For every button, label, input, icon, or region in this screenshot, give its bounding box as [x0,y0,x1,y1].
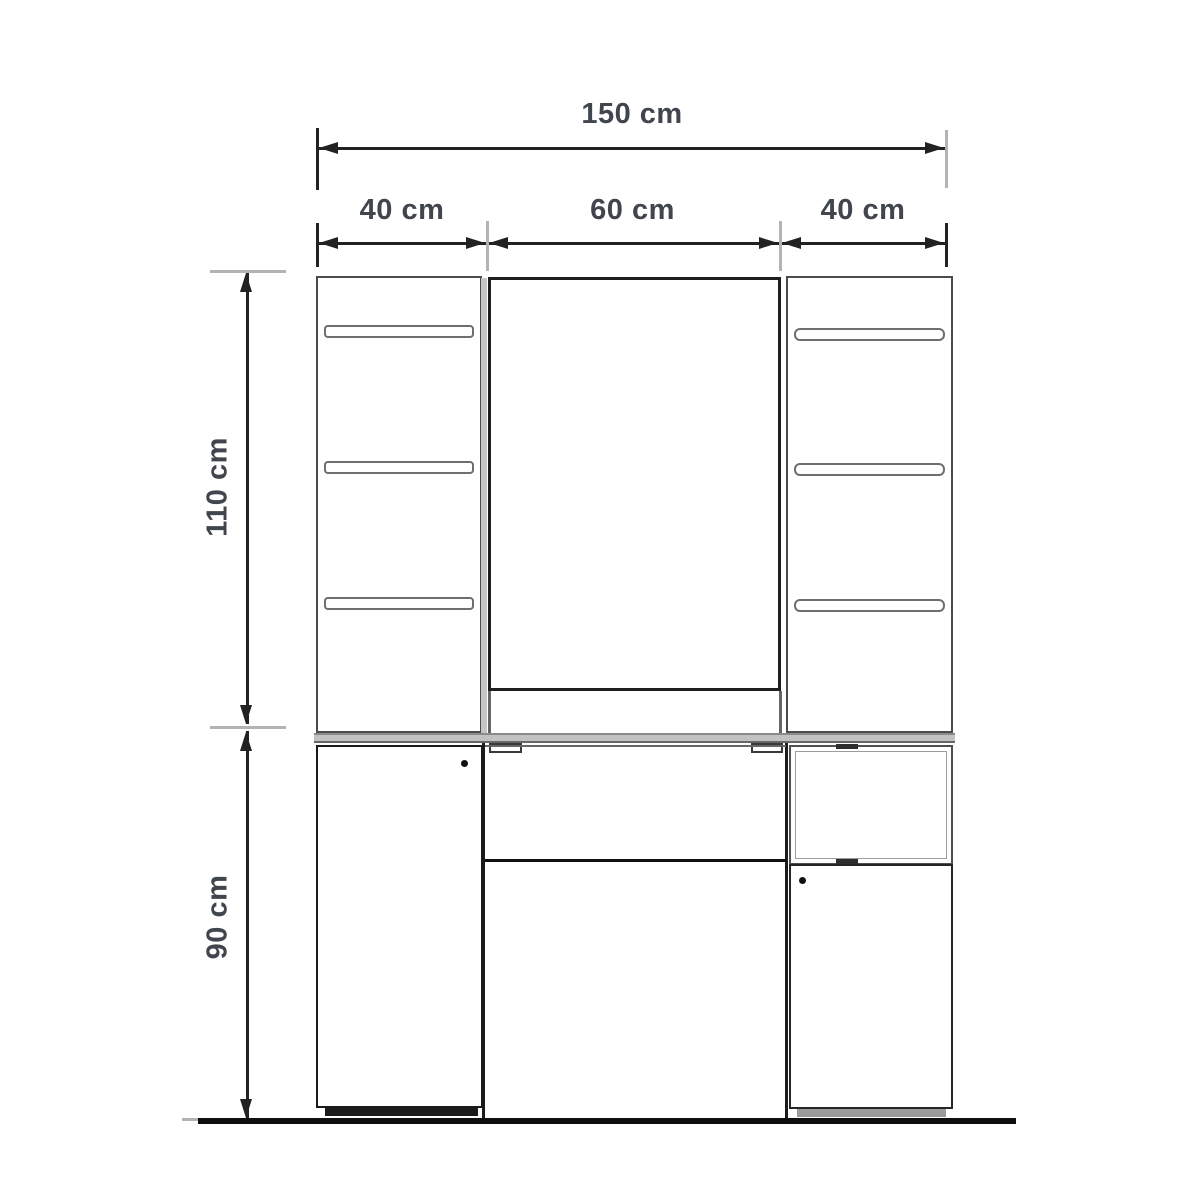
dim-sections-line [318,242,947,245]
dim-upper-height-label: 110 cm [198,410,238,565]
worktop [314,733,955,743]
right-plinth [797,1109,946,1117]
right-open-compartment-inner [795,751,947,859]
left-shelf-front-2 [324,461,474,474]
arrowhead-right [925,142,944,154]
right-shelf-front-2 [794,463,945,476]
dim-lower-height-line [246,731,249,1119]
dim-section-right-label: 40 cm [779,194,947,227]
dim-total-width-label: 150 cm [318,98,946,131]
dim-upper-height-tick-bottom [210,726,286,729]
arrowhead-right [925,237,944,249]
arrowhead-up [240,732,252,751]
arrowhead-right [759,237,778,249]
lower-right-door [789,864,953,1109]
arrowhead-down [240,1099,252,1118]
right-shelf-front-3 [794,599,945,612]
floor-line [198,1118,1016,1124]
technical-drawing-canvas: 150 cm 40 cm 60 cm 40 cm 110 cm 90 cm [0,0,1200,1200]
right-door-knob [799,877,806,884]
dim-total-width-tick-left [316,128,319,190]
left-shelf-front-3 [324,597,474,610]
mirror-support-left [488,691,491,733]
dim-sections-tick-right [945,223,948,267]
dim-total-width-line [318,147,946,150]
left-plinth [325,1108,478,1116]
mirror-support-right [779,691,782,733]
dim-section-left-label: 40 cm [318,194,486,227]
arrowhead-right [466,237,485,249]
dim-section-middle-label: 60 cm [486,194,779,227]
dim-lower-height-label: 90 cm [198,840,238,995]
arrowhead-left [319,142,338,154]
arrowhead-left [782,237,801,249]
dim-upper-height-line [246,272,249,724]
left-panel-edge [481,278,487,733]
left-shelf-front-1 [324,325,474,338]
arrowhead-left [489,237,508,249]
left-door-knob [461,760,468,767]
arrowhead-down [240,705,252,724]
mirror [488,277,781,691]
upper-left-cabinet [316,276,482,733]
dim-total-width-tick-right [945,130,948,188]
compartment-mark-top [836,744,858,749]
middle-drawer-front [485,745,786,862]
right-shelf-front-1 [794,328,945,341]
arrowhead-up [240,273,252,292]
arrowhead-left [319,237,338,249]
upper-right-cabinet [786,276,953,733]
lower-left-door [316,745,483,1108]
